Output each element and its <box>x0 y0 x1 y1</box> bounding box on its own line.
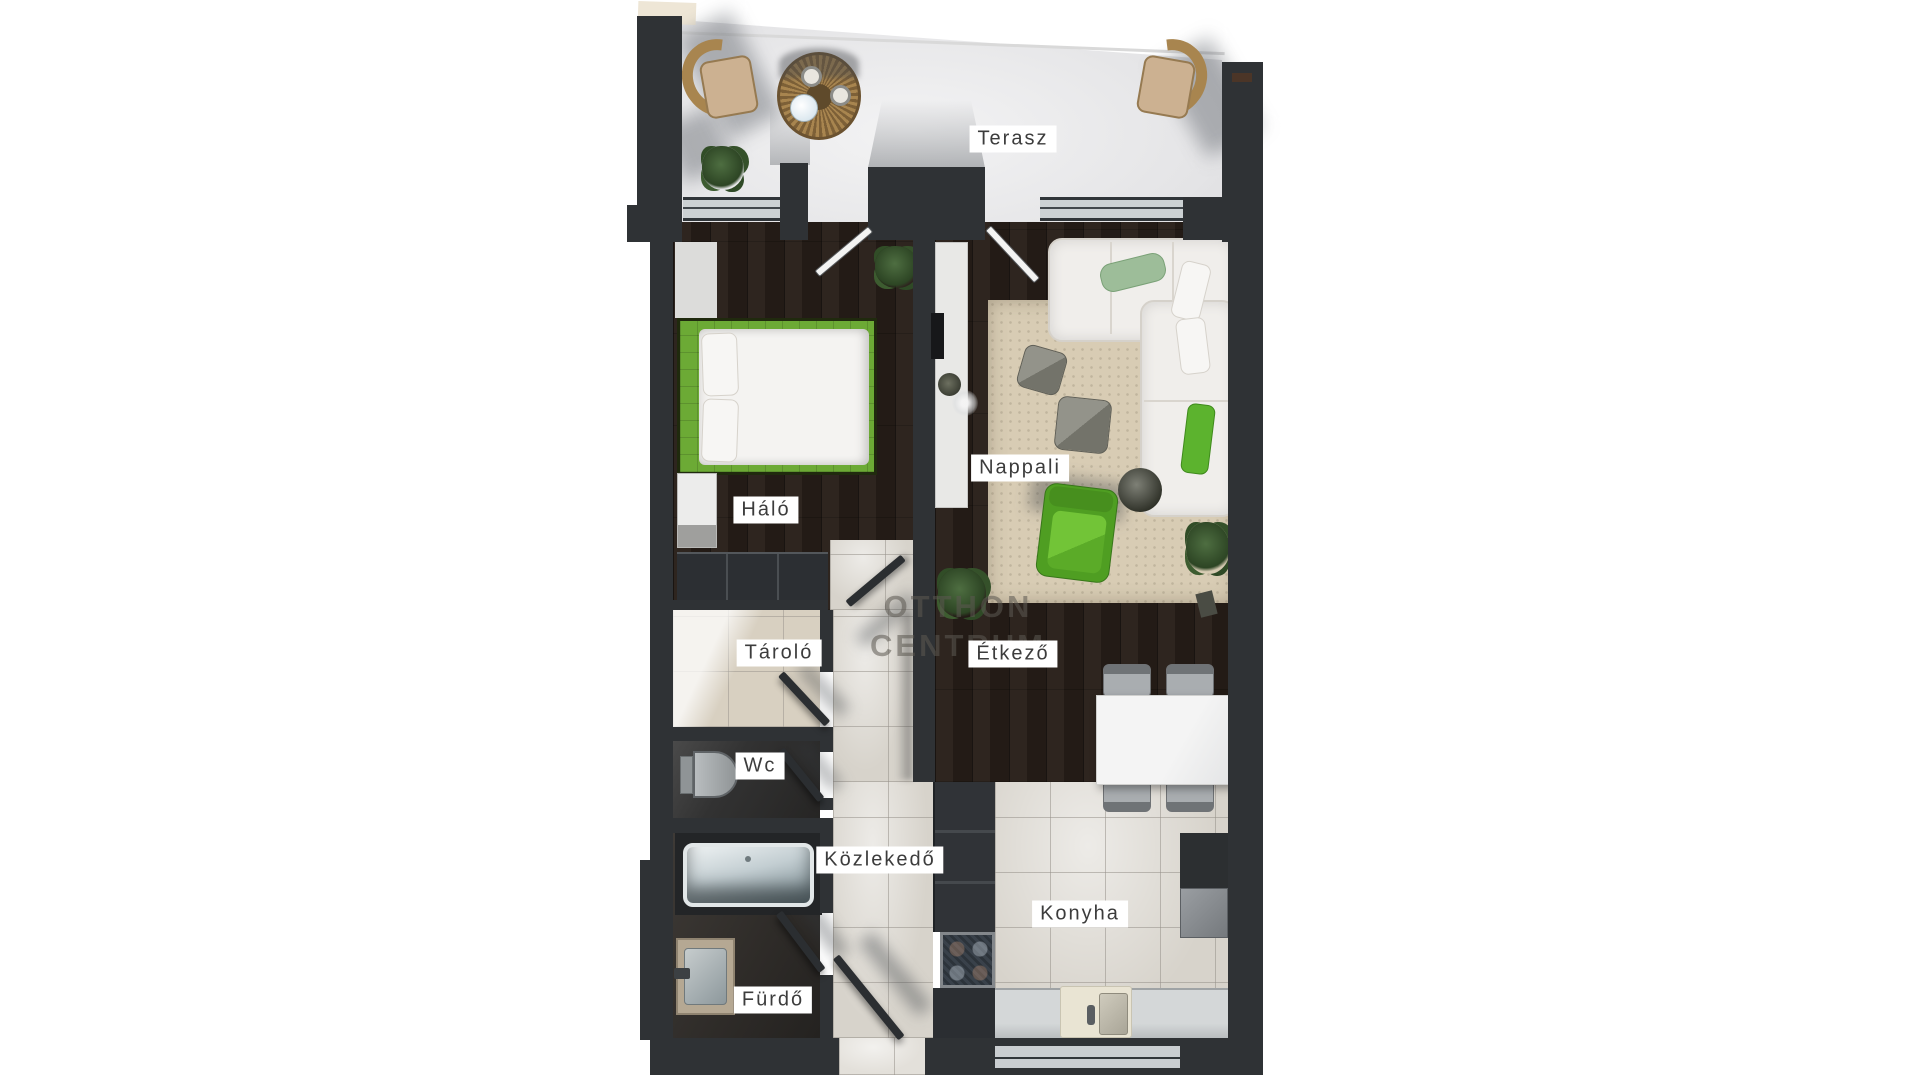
wicker-chair-right <box>1118 38 1208 130</box>
sideboard-flowers <box>952 390 978 416</box>
room-label-terasz: Terasz <box>970 126 1057 153</box>
wc-right-wall-upper <box>820 740 833 752</box>
wall-wc-bath <box>650 818 833 833</box>
left-wall-step <box>640 860 652 1040</box>
wicker-table-glass <box>790 94 818 122</box>
room-label-kozlekedo: Közlekedő <box>816 847 943 874</box>
room-label-konyha: Konyha <box>1032 901 1128 928</box>
bathtub <box>683 843 814 907</box>
kitchen-cooktop <box>940 932 995 988</box>
kitchen-right-appliance <box>1180 888 1228 938</box>
wicker-chair-left-seat <box>698 54 759 120</box>
floor-plan: OTTHON CENTRUM Terasz Háló Nappali Tárol… <box>0 0 1920 1080</box>
room-label-halo: Háló <box>733 497 798 524</box>
bottom-wall-left <box>650 1038 839 1075</box>
room-label-furdo: Fürdő <box>734 987 812 1014</box>
tv-screen <box>931 313 944 359</box>
window-bedroom <box>683 197 780 221</box>
dining-table <box>1096 695 1232 785</box>
sphere-side-table <box>1118 468 1162 512</box>
green-armchair <box>1035 482 1120 584</box>
toilet-bowl <box>693 751 738 798</box>
dining-chair-1 <box>1103 664 1151 698</box>
bath-right-wall-lower <box>820 975 833 1038</box>
kitchen-sink-unit <box>1060 986 1132 1038</box>
pier-left <box>780 163 808 240</box>
right-wall <box>1228 240 1263 1075</box>
bedroom-wardrobe <box>677 552 828 602</box>
bed-pillow-top <box>701 332 739 396</box>
watermark-line1: OTTHON <box>870 587 1046 626</box>
room-label-wc: Wc <box>736 753 785 780</box>
kitchen-cabinet-lower <box>933 988 995 1038</box>
bedroom-nightstand <box>677 473 717 548</box>
storage-right-wall <box>820 610 833 672</box>
wicker-table-cup1 <box>801 66 822 87</box>
room-label-tarolo: Tároló <box>737 640 822 667</box>
room-label-nappali: Nappali <box>971 455 1069 482</box>
kitchen-right-cabinet-dark <box>1180 833 1228 888</box>
toilet-tank <box>680 756 693 794</box>
terrace-right-wall <box>1222 62 1263 242</box>
terrace-right-wall-accent <box>1232 73 1252 82</box>
pier-right <box>1183 197 1228 240</box>
dining-chair-2 <box>1166 664 1214 698</box>
wall-below-wardrobe <box>650 600 828 610</box>
wicker-table <box>777 52 861 140</box>
green-armchair-cushion <box>1047 510 1108 574</box>
wicker-chair-right-seat <box>1135 54 1196 120</box>
sofa-seam-2 <box>1172 242 1174 302</box>
left-wall <box>650 240 673 1040</box>
living-plant <box>1186 522 1230 574</box>
terrace-left-wall-step <box>627 205 641 242</box>
terrace-plant <box>702 146 744 190</box>
bath-faucet <box>674 968 690 979</box>
sofa-seam-3 <box>1144 400 1228 402</box>
pouf-large <box>1053 395 1112 454</box>
kitchen-sink-basin <box>1099 993 1128 1035</box>
wc-right-wall-lower <box>820 798 833 810</box>
bath-sink <box>684 948 727 1005</box>
terrace-left-wall <box>637 16 682 242</box>
bed-pillow-bottom <box>701 398 739 462</box>
bottom-window <box>995 1046 1180 1068</box>
wicker-table-cup2 <box>830 85 851 106</box>
wall-storage-wc <box>650 727 833 741</box>
pier-middle <box>868 167 985 240</box>
bedroom-light-patch <box>675 242 717 318</box>
room-label-etkezo: Étkező <box>968 641 1057 668</box>
wicker-chair-left <box>683 38 773 130</box>
storage-floor <box>673 610 820 727</box>
bathtub-drain <box>745 856 751 862</box>
window-living <box>1040 197 1183 221</box>
terrace-pier-shadow-middle <box>868 100 985 168</box>
green-armchair-back <box>1048 485 1114 513</box>
entry-floor <box>839 1038 925 1075</box>
kitchen-faucet <box>1087 1005 1095 1025</box>
